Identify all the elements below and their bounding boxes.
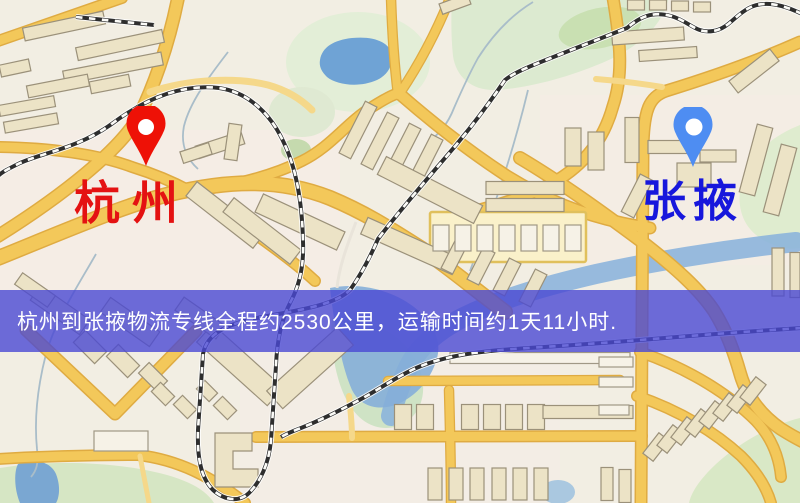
building	[619, 470, 631, 503]
origin-label: 杭州	[74, 181, 190, 227]
building	[484, 405, 501, 430]
building	[462, 405, 479, 430]
destination-label: 张掖	[642, 180, 744, 224]
building	[528, 405, 545, 430]
building	[565, 225, 581, 251]
building	[506, 405, 523, 430]
building	[534, 468, 548, 500]
building	[601, 468, 613, 501]
lake	[320, 38, 392, 85]
building	[486, 182, 564, 195]
building	[599, 377, 633, 387]
building	[543, 225, 559, 251]
building	[521, 225, 537, 251]
logistics-route-map: 杭州到张掖物流专线全程约2530公里，运输时间约1天11小时. 杭州 张掖	[0, 0, 800, 503]
building	[449, 468, 463, 500]
building	[428, 468, 442, 500]
building	[599, 357, 633, 367]
building	[455, 225, 471, 251]
map-canvas	[0, 0, 800, 503]
building	[648, 141, 688, 154]
building	[499, 225, 515, 251]
building	[94, 431, 148, 451]
building	[672, 1, 689, 11]
building	[470, 468, 484, 500]
route-info-text: 杭州到张掖物流专线全程约2530公里，运输时间约1天11小时.	[17, 306, 617, 336]
building	[599, 405, 629, 415]
building	[395, 405, 412, 430]
building	[625, 118, 639, 163]
building	[588, 132, 604, 170]
building	[565, 128, 581, 166]
building	[513, 468, 527, 500]
building	[486, 199, 564, 212]
building	[650, 0, 667, 10]
building	[628, 0, 645, 10]
route-info-banner: 杭州到张掖物流专线全程约2530公里，运输时间约1天11小时.	[0, 290, 800, 352]
building	[772, 248, 784, 296]
building	[477, 225, 493, 251]
building	[492, 468, 506, 500]
building	[417, 405, 434, 430]
building	[694, 2, 711, 12]
building	[433, 225, 449, 251]
building	[700, 150, 736, 162]
